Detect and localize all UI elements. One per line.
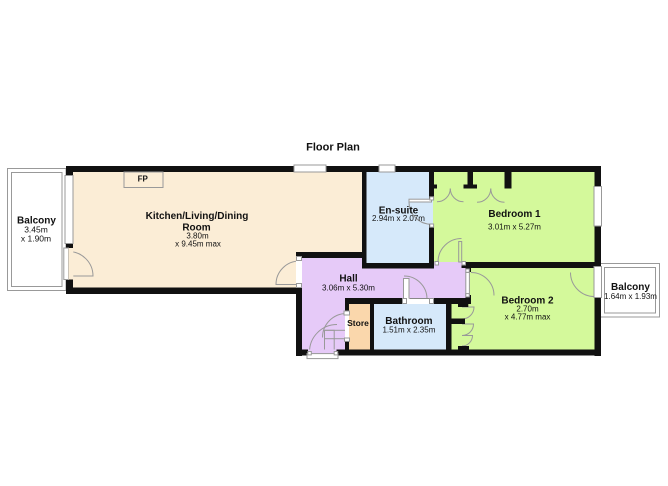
svg-text:1.64m x 1.93m: 1.64m x 1.93m xyxy=(604,292,657,301)
svg-text:2.94m x 2.07m: 2.94m x 2.07m xyxy=(372,214,425,223)
svg-text:FP: FP xyxy=(138,175,149,184)
svg-text:x 9.45m max: x 9.45m max xyxy=(175,240,221,249)
svg-text:x 4.77m max: x 4.77m max xyxy=(505,313,551,322)
svg-text:Floor Plan: Floor Plan xyxy=(306,142,360,154)
svg-text:Kitchen/Living/Dining: Kitchen/Living/Dining xyxy=(146,211,249,222)
svg-text:x 1.90m: x 1.90m xyxy=(21,234,51,244)
svg-text:1.51m x 2.35m: 1.51m x 2.35m xyxy=(382,326,435,335)
svg-text:Bedroom 1: Bedroom 1 xyxy=(488,209,541,220)
svg-text:3.06m x 5.30m: 3.06m x 5.30m xyxy=(322,284,375,293)
svg-text:3.01m x 5.27m: 3.01m x 5.27m xyxy=(488,223,541,232)
svg-text:Store: Store xyxy=(347,318,369,328)
